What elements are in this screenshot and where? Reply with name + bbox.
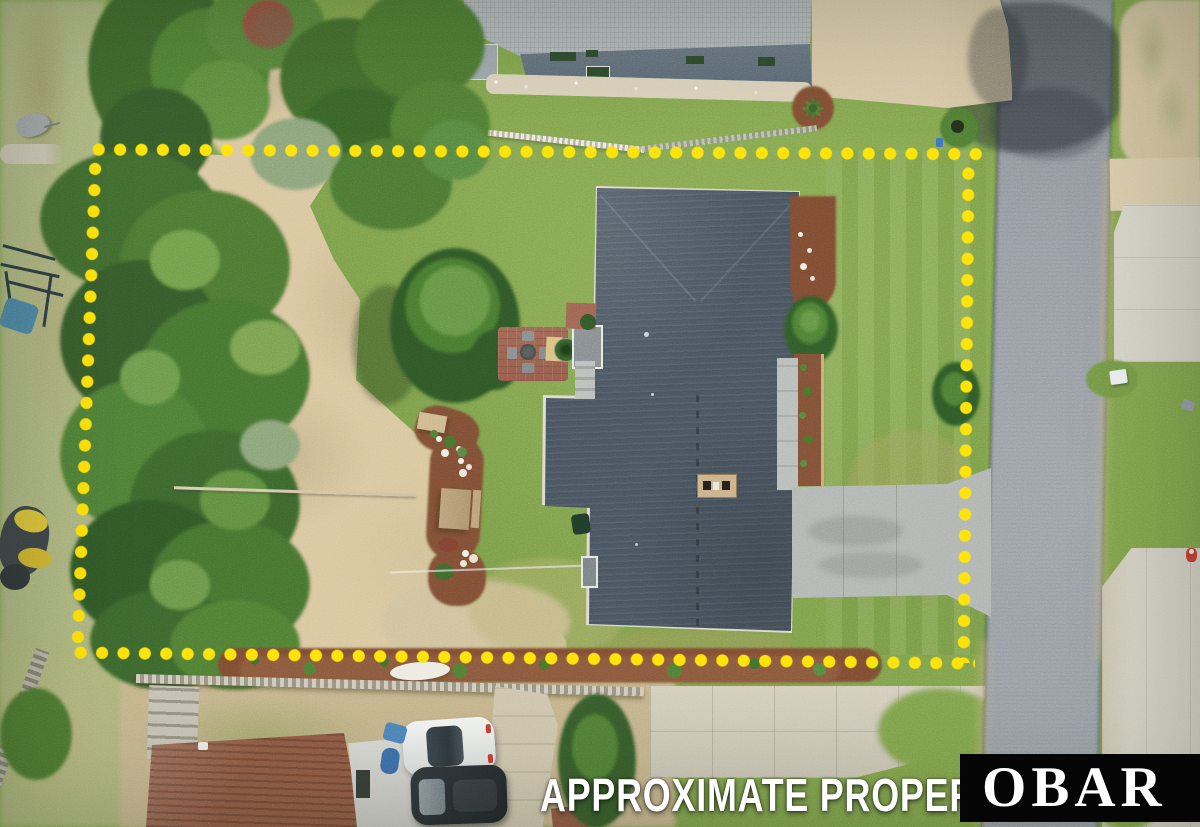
white-flowers-cluster xyxy=(458,458,464,464)
driveway-tire-stain xyxy=(808,516,903,546)
obar-logo-box: OBAR xyxy=(960,754,1200,822)
well-cover xyxy=(951,120,964,133)
patio-table-set xyxy=(507,331,549,373)
chimney-cap xyxy=(713,482,719,490)
patio-chair xyxy=(522,331,534,341)
green-sprigs xyxy=(430,430,438,438)
roof-hip-line-left xyxy=(599,194,696,302)
front-bed-flowers xyxy=(798,232,803,237)
porch-bush xyxy=(580,314,596,330)
garage-window xyxy=(356,770,370,798)
neighbor-window-4 xyxy=(686,56,704,64)
swing-set xyxy=(0,243,62,343)
aerial-photo: APPROXIMATE PROPERTY LIN OBAR xyxy=(0,0,1200,827)
trash-bin xyxy=(571,513,592,535)
fire-hydrant-cap xyxy=(1189,549,1194,554)
white-flowers-cluster xyxy=(462,550,469,557)
east-concrete-slab-upper xyxy=(1114,204,1200,362)
palm-tree xyxy=(801,96,825,120)
patio-table xyxy=(520,344,536,360)
tree-canopy-highlight xyxy=(420,266,490,336)
patio-steps xyxy=(575,361,595,399)
suv-taillight xyxy=(486,724,492,733)
side-walkway xyxy=(777,358,798,490)
bush-graygreen xyxy=(240,420,300,470)
chimney-flue xyxy=(703,481,711,490)
neighbor-window-2 xyxy=(586,50,598,57)
plastic-slide-blue xyxy=(0,296,40,335)
black-suv-roof-highlight xyxy=(452,779,497,813)
red-plant xyxy=(438,538,458,552)
driveway-tire-stain xyxy=(818,552,923,578)
lower-bed-plants xyxy=(800,364,807,371)
utility-marker-blue xyxy=(936,138,943,147)
black-suv xyxy=(410,764,508,825)
obar-logo-text: OBAR xyxy=(960,754,1200,822)
bush-light xyxy=(200,470,270,530)
dark-green-plant xyxy=(434,564,454,580)
south-neighbor-roof xyxy=(146,733,362,827)
flowering-bush-red xyxy=(243,0,293,48)
roof-ridge-vent xyxy=(696,386,699,626)
ac-unit-frame xyxy=(581,556,598,588)
canoe-dark xyxy=(0,564,30,590)
palm-center xyxy=(809,104,817,112)
corner-tree-bottom-left xyxy=(0,688,72,780)
roof-vent-dot xyxy=(644,332,649,337)
mailbox xyxy=(1109,369,1128,385)
driveway-joint xyxy=(896,484,897,596)
black-suv-windshield xyxy=(418,778,445,815)
swing-bar xyxy=(6,280,63,297)
neighbor-driveway-shadow xyxy=(968,8,1028,108)
bush-light xyxy=(150,230,220,290)
white-flowers-cluster xyxy=(436,436,442,442)
front-mulch-bed-upper xyxy=(790,196,836,312)
suv-glass-roof xyxy=(426,725,465,767)
neighbor-window-5 xyxy=(758,57,775,66)
patio-chair xyxy=(522,363,534,373)
stored-boats xyxy=(0,500,60,590)
chimney xyxy=(697,474,737,498)
swing-bar xyxy=(3,244,56,261)
east-driveway-apron xyxy=(1110,157,1200,211)
patio-chair xyxy=(507,347,517,359)
bush-light xyxy=(150,560,210,610)
chimney-flue xyxy=(722,481,730,490)
roof-hip-line-right xyxy=(700,198,797,302)
shrub-highlight xyxy=(800,310,820,332)
picnic-table xyxy=(439,488,472,530)
bush-light xyxy=(230,320,300,375)
south-neighbor-roof-vent xyxy=(198,742,208,750)
suv-taillight xyxy=(488,754,494,763)
neighbor-window-1 xyxy=(550,52,576,61)
front-mulch-bed-lower xyxy=(794,354,824,486)
bush-light xyxy=(120,350,180,405)
east-sandy-lot xyxy=(1120,0,1200,168)
swing-leg xyxy=(42,275,52,327)
